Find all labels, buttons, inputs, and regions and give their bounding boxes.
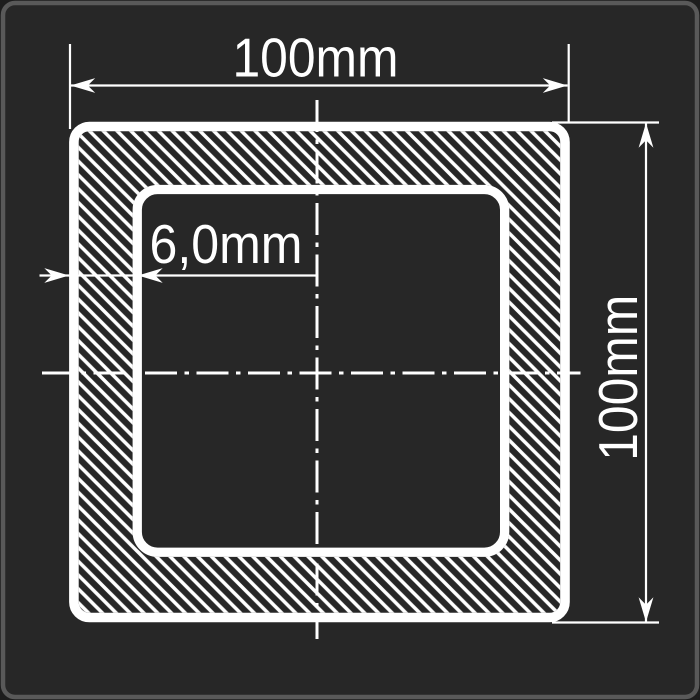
svg-text:6,0mm: 6,0mm	[150, 213, 303, 275]
svg-text:100mm: 100mm	[587, 295, 649, 461]
svg-text:100mm: 100mm	[233, 27, 399, 89]
